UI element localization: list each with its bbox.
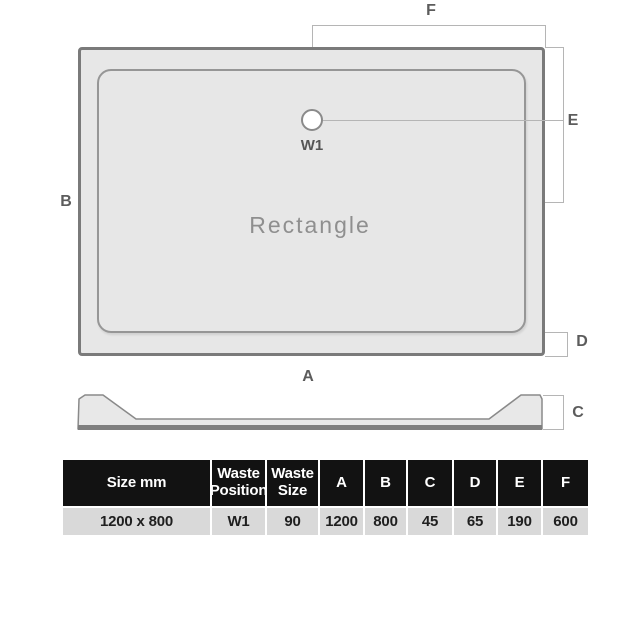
side-profile-base-rail (78, 425, 542, 430)
dim-d-bracket (545, 332, 568, 357)
dim-d-label: D (570, 332, 594, 352)
header-cell-a: A (320, 460, 365, 506)
header-cell-waste-size: Waste Size (267, 460, 320, 506)
data-cell-a: 1200 (320, 508, 365, 535)
header-cell-b: B (365, 460, 408, 506)
data-cell-e: 190 (498, 508, 543, 535)
header-cell-c: C (408, 460, 454, 506)
dim-c-bracket (543, 395, 564, 430)
dim-c-label: C (566, 403, 590, 423)
header-cell-waste-position: Waste Position (212, 460, 267, 506)
dim-f-line-horizontal (312, 25, 545, 26)
header-cell-size: Size mm (63, 460, 212, 506)
waste-circle (301, 109, 323, 131)
dim-b-label: B (54, 192, 78, 212)
product-dimension-diagram: F E W1 Rectangle B D A C Size (0, 0, 643, 643)
data-cell-d: 65 (454, 508, 498, 535)
dim-f-line-right (545, 25, 546, 47)
data-cell-waste-position: W1 (212, 508, 267, 535)
data-cell-f: 600 (543, 508, 588, 535)
waste-position-label: W1 (292, 137, 332, 154)
spec-table-header-row: Size mm Waste Position Waste Size A B C … (63, 460, 588, 506)
data-cell-c: 45 (408, 508, 454, 535)
header-cell-f: F (543, 460, 588, 506)
dim-f-label: F (411, 1, 451, 21)
spec-table-data-row: 1200 x 800 W1 90 1200 800 45 65 190 600 (63, 508, 588, 535)
header-cell-e: E (498, 460, 543, 506)
side-profile-shape (78, 395, 542, 429)
header-cell-d: D (454, 460, 498, 506)
shape-name-label: Rectangle (210, 212, 410, 239)
data-cell-b: 800 (365, 508, 408, 535)
spec-table: Size mm Waste Position Waste Size A B C … (63, 460, 588, 535)
data-cell-size: 1200 x 800 (63, 508, 212, 535)
dim-e-label: E (561, 111, 585, 131)
data-cell-waste-size: 90 (267, 508, 320, 535)
side-profile-drawing (76, 391, 546, 433)
waste-center-line (322, 120, 564, 121)
dim-a-label: A (288, 367, 328, 387)
